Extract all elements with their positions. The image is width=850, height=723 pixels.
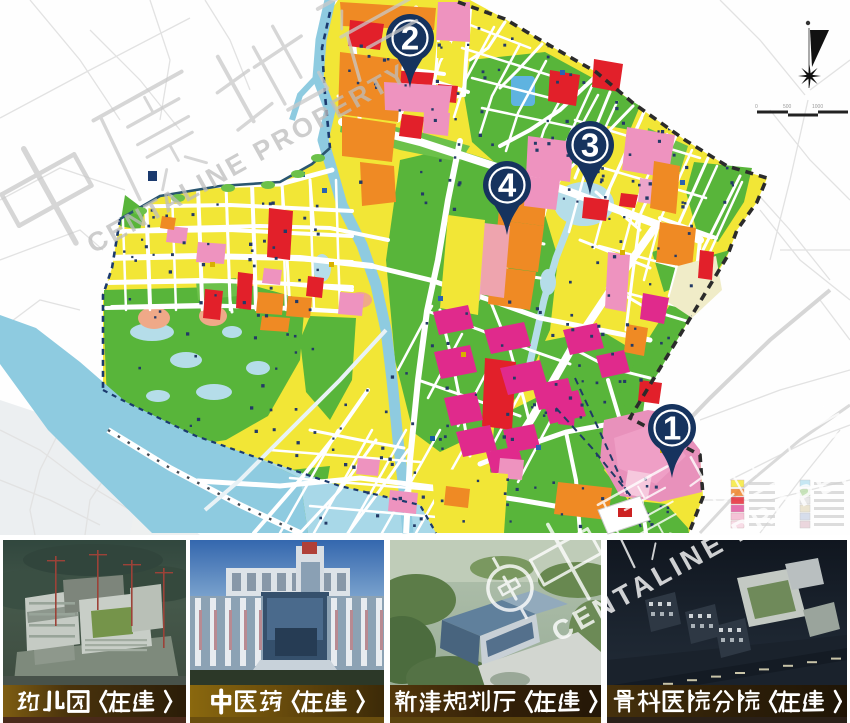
svg-text:1000: 1000 (812, 104, 823, 110)
svg-text:1: 1 (663, 410, 681, 447)
svg-text:4: 4 (498, 167, 517, 204)
svg-text:500: 500 (783, 104, 792, 110)
svg-text:0: 0 (755, 104, 758, 110)
svg-text:3: 3 (581, 127, 599, 164)
